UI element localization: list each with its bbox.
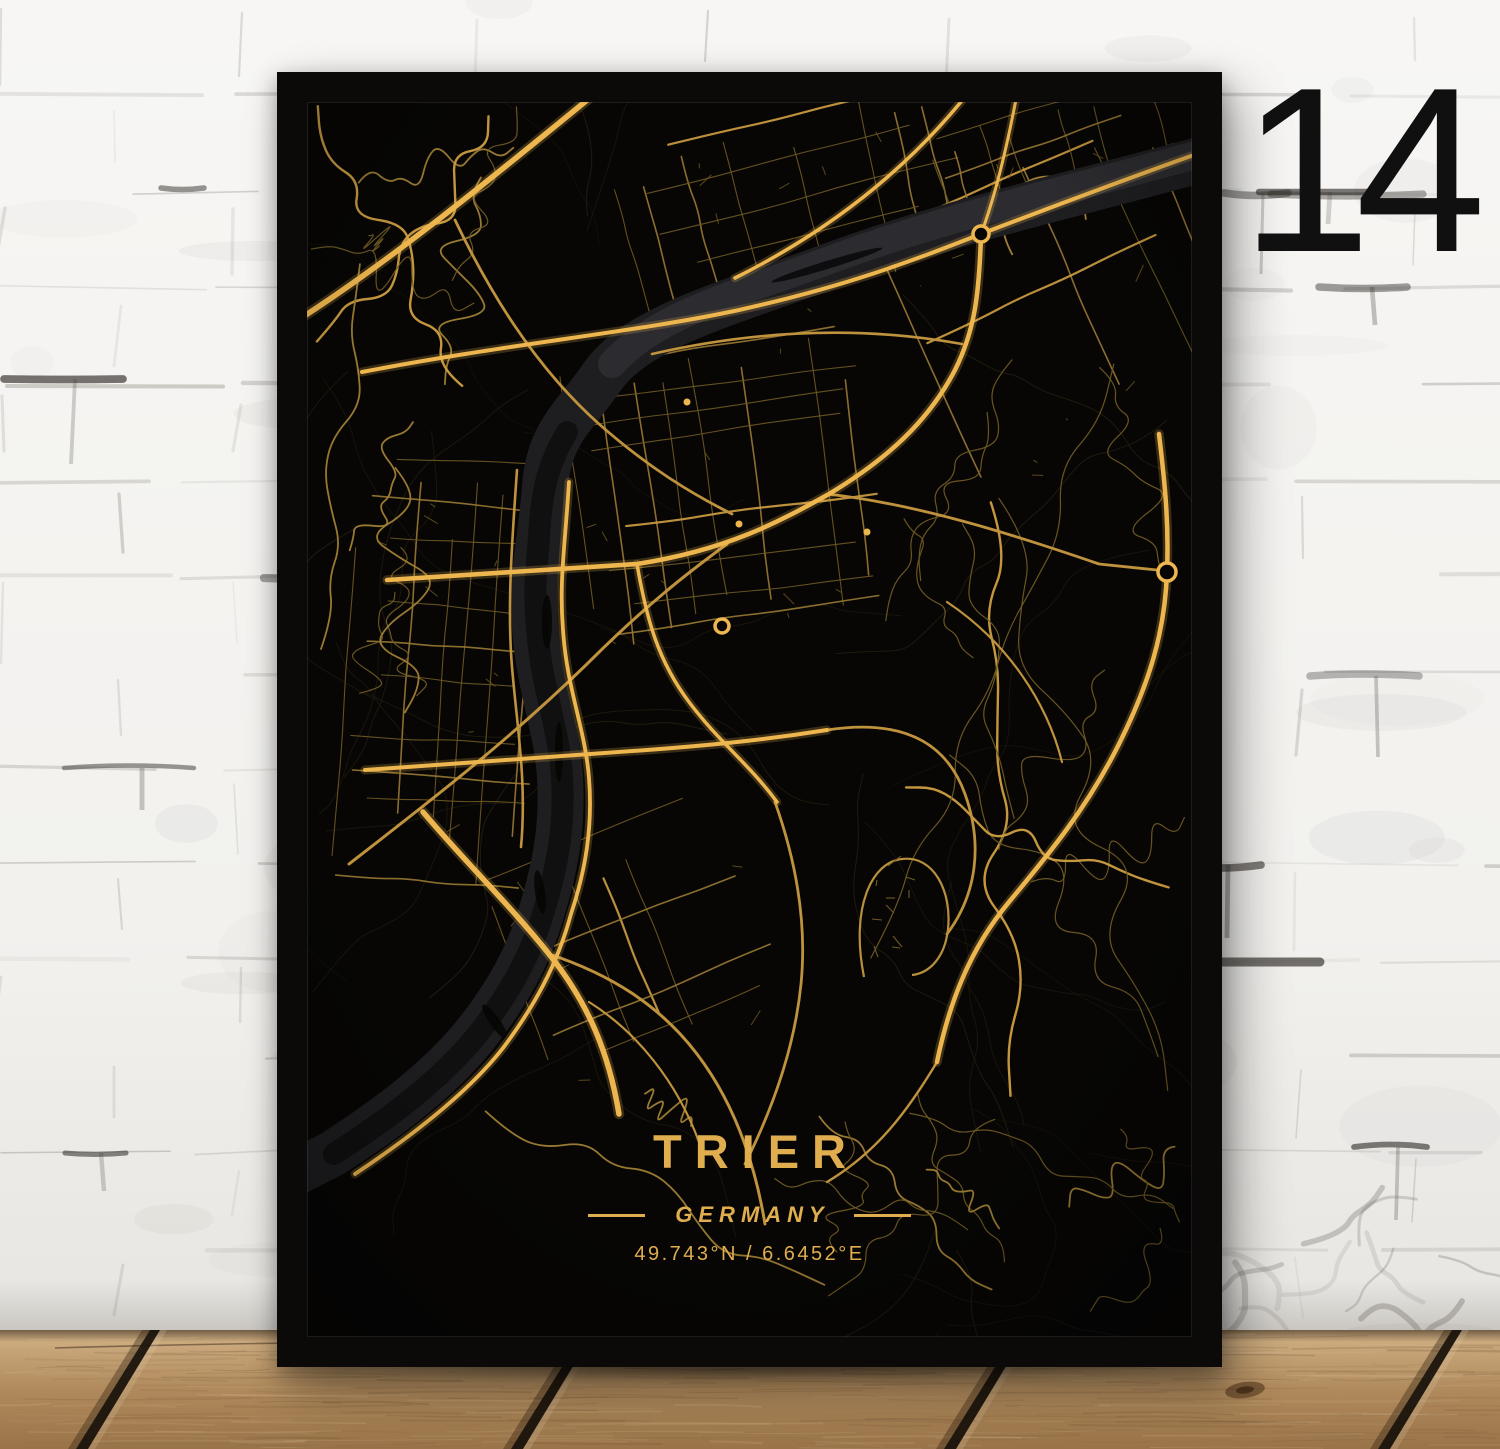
city-map-artwork [307,102,1192,1337]
product-photo-scene: TRIER GERMANY 49.743°N / 6.6452°E 14 [0,0,1500,1449]
poster-frame: TRIER GERMANY 49.743°N / 6.6452°E [277,72,1222,1367]
listing-number-label: 14 [1241,52,1486,287]
map-poster: TRIER GERMANY 49.743°N / 6.6452°E [307,102,1192,1337]
